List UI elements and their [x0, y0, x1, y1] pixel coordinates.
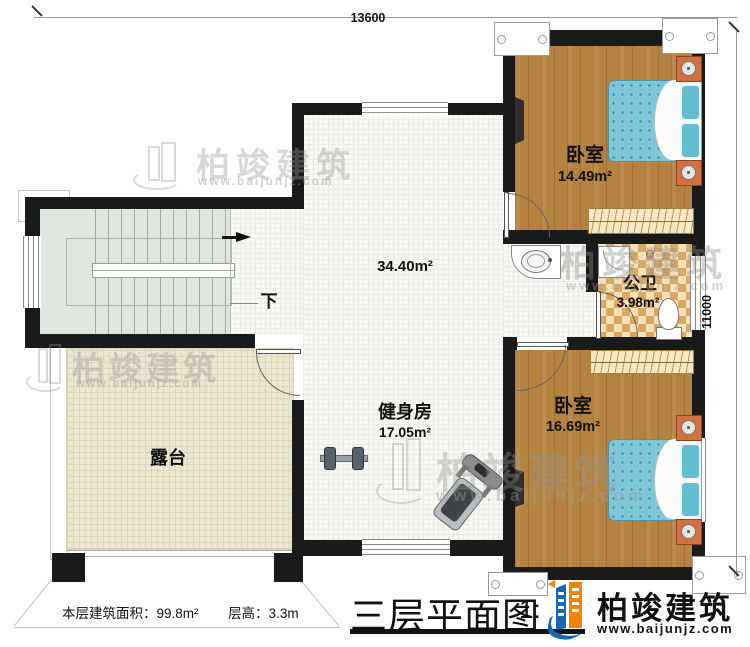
pillow: [680, 84, 701, 121]
wall: [503, 337, 517, 350]
nightstand: [676, 160, 702, 186]
wall: [586, 244, 598, 292]
dimension-label-height: 11000: [700, 283, 718, 341]
dimension-label-width: 13600: [340, 11, 396, 25]
window: [362, 539, 450, 557]
sink-basin: [527, 254, 545, 268]
dimension-tick: [728, 21, 739, 32]
wall: [25, 197, 303, 209]
tv-icon: [515, 97, 524, 144]
nightstand: [676, 519, 702, 545]
wall: [292, 103, 362, 115]
wall: [567, 337, 705, 350]
window: [362, 102, 448, 116]
dimension-tick: [31, 5, 42, 16]
floor-notes: 本层建筑面积：99.8m² 层高：3.3m: [62, 602, 382, 622]
tv-icon: [515, 469, 524, 507]
room-label-bedroom-bottom: 卧室: [533, 396, 613, 418]
dimension-line-right: [736, 31, 737, 577]
dumbbell-icon: [320, 446, 366, 470]
wall: [292, 103, 304, 209]
window-sill-symbol: [494, 22, 550, 56]
watermark-logo-icon: [375, 438, 430, 504]
window-sill-symbol: [662, 18, 718, 54]
wardrobe: [590, 350, 694, 374]
double-bed: [608, 415, 702, 543]
wall: [448, 103, 505, 115]
area-label-bedroom-top: 14.49m²: [540, 169, 630, 186]
stair-arrow-icon: [236, 232, 251, 242]
terrace-railing: [66, 556, 292, 557]
floor-area-note: 本层建筑面积：99.8m²: [62, 606, 199, 621]
room-label-bedroom-top: 卧室: [545, 145, 625, 167]
stair-gym-boundary: [230, 209, 231, 334]
wall: [292, 400, 304, 555]
watermark-logo-icon: [25, 344, 67, 392]
pillow: [680, 122, 701, 159]
wall: [450, 540, 505, 556]
drawing-scale: 1:: [519, 594, 541, 625]
wall: [503, 350, 515, 580]
area-label-hall: 34.40m²: [352, 258, 458, 275]
wardrobe: [588, 208, 694, 234]
floor-height-note: 层高：3.3m: [228, 606, 299, 621]
pillow: [680, 443, 701, 480]
watermark-logo-icon: [132, 142, 184, 190]
pillar: [52, 553, 85, 582]
brand-url: www.baijunjz.com: [597, 621, 733, 636]
floor-plan-canvas: 13600 11000 下: [0, 0, 750, 647]
terrace-eave-diagonal: [13, 579, 52, 626]
room-label-terrace: 露台: [128, 448, 208, 469]
stair-arrow-tail: [222, 236, 236, 239]
nightstand: [676, 56, 702, 82]
area-label-bedroom-bottom: 16.69m²: [528, 419, 618, 436]
window: [23, 236, 41, 308]
nightstand: [676, 415, 702, 441]
stair-handrail: [92, 263, 235, 278]
corridor-floor: [230, 209, 303, 334]
pillow: [680, 481, 701, 518]
area-label-bathroom: 3.98m²: [602, 295, 674, 311]
terrace-eave-bottom: [14, 627, 340, 628]
stair-down-line: [230, 303, 258, 304]
brand-logo-icon: [540, 578, 594, 642]
room-label-gym: 健身房: [360, 402, 450, 423]
stair-down-label: 下: [256, 292, 282, 312]
terrace-railing: [66, 550, 292, 551]
pillar: [274, 553, 303, 582]
faucet-icon: [548, 258, 552, 262]
drain-icon: [646, 250, 654, 258]
wall: [292, 540, 362, 556]
room-label-bathroom: 公卫: [602, 274, 678, 294]
